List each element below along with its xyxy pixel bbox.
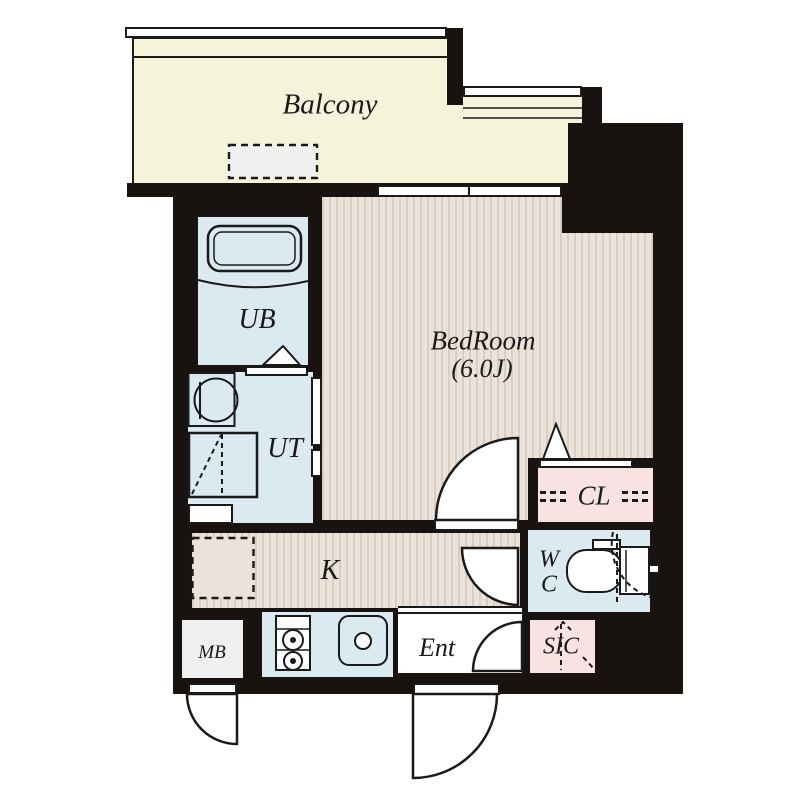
utility-sliding-door-upper xyxy=(311,377,322,446)
wc-label: W C xyxy=(539,548,559,599)
balcony-step-floor xyxy=(463,97,582,123)
kitchen-label: K xyxy=(321,556,340,586)
bedroom-window xyxy=(377,185,562,197)
utility-label: UT xyxy=(267,434,303,464)
bedroom-floor-bottom xyxy=(322,458,528,520)
outer-wall-top-right xyxy=(568,123,683,185)
closet-opening xyxy=(539,459,633,468)
balcony-label: Balcony xyxy=(282,90,377,121)
service-door-opening xyxy=(188,683,237,694)
bath-door-sill xyxy=(245,366,308,376)
floorplan-canvas: Balcony BedRoom (6.0J) UB UT K CL W C En… xyxy=(0,0,800,800)
entrance-door-opening xyxy=(413,683,500,695)
entrance-threshold xyxy=(398,606,522,614)
balcony-step-ledge xyxy=(463,86,582,97)
kitchen-floor xyxy=(192,533,520,608)
balcony-partition-wall xyxy=(447,28,463,105)
entrance-label: Ent xyxy=(419,634,455,662)
utility-sliding-door-lower xyxy=(311,449,322,477)
bedroom-label: BedRoom xyxy=(431,327,536,356)
shoe-closet-label: SIC xyxy=(543,634,579,659)
utility-step xyxy=(188,504,233,524)
kitchen-counter xyxy=(262,612,393,677)
unit-bath-floor xyxy=(198,217,308,365)
balcony-floor-right xyxy=(463,123,568,183)
bedroom-size-label: (6.0J) xyxy=(451,355,512,383)
front-door-swing xyxy=(413,694,497,778)
meter-box-label: MB xyxy=(198,643,225,663)
bedroom-floor-top xyxy=(322,197,562,233)
closet-label: CL xyxy=(577,482,610,511)
outer-wall-step xyxy=(582,87,602,123)
unit-bath-label: UB xyxy=(238,305,275,335)
entrance-floor xyxy=(398,613,522,673)
bedroom-door-sill xyxy=(434,519,519,531)
service-door-swing xyxy=(187,694,237,744)
balcony-bottom-wall xyxy=(127,183,173,197)
